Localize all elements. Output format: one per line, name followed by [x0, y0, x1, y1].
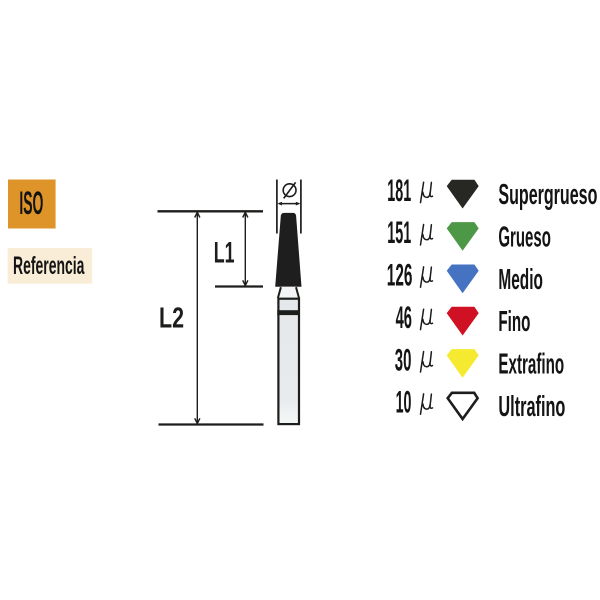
- svg-text:ISO: ISO: [19, 185, 43, 221]
- svg-text:Fino: Fino: [498, 306, 530, 338]
- svg-text:Referencia: Referencia: [13, 252, 85, 280]
- svg-text:Extrafino: Extrafino: [498, 349, 564, 381]
- svg-text:126: 126: [387, 257, 413, 293]
- svg-text:L1: L1: [214, 236, 235, 269]
- svg-text:151: 151: [387, 214, 411, 250]
- svg-text:Medio: Medio: [498, 264, 543, 296]
- svg-text:10: 10: [396, 384, 412, 420]
- svg-text:Supergrueso: Supergrueso: [498, 179, 597, 211]
- svg-text:L2: L2: [159, 303, 184, 335]
- svg-text:Grueso: Grueso: [498, 222, 550, 254]
- svg-text:46: 46: [396, 299, 412, 335]
- svg-text:181: 181: [387, 172, 411, 208]
- svg-text:30: 30: [395, 341, 412, 377]
- svg-text:Ultrafino: Ultrafino: [498, 391, 565, 423]
